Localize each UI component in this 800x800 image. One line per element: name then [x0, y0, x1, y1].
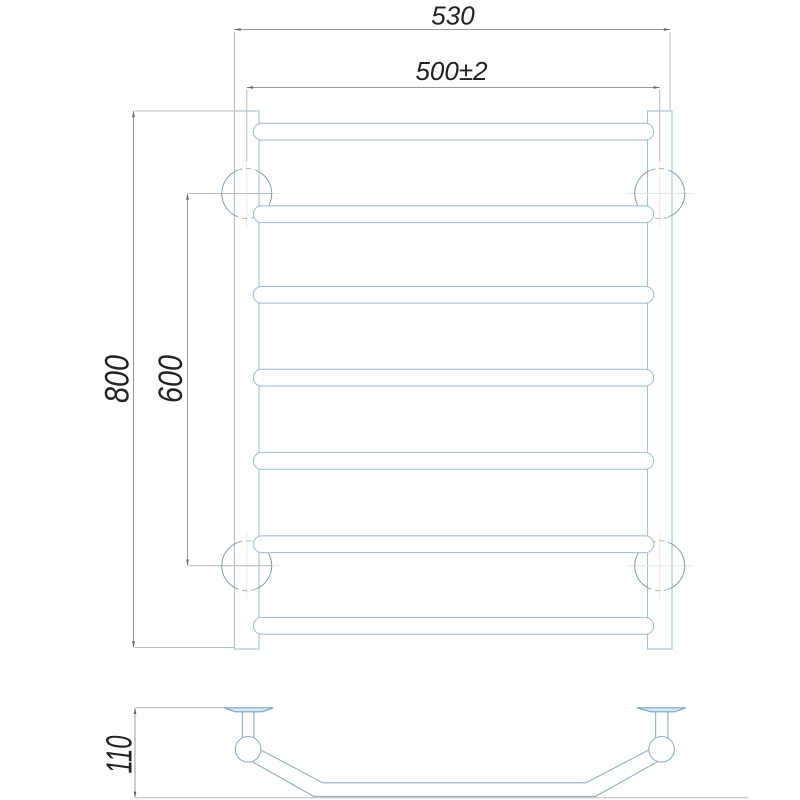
svg-text:530: 530: [431, 1, 475, 31]
svg-text:500±2: 500±2: [415, 56, 488, 86]
svg-text:110: 110: [99, 736, 140, 774]
svg-text:600: 600: [152, 355, 190, 403]
svg-text:800: 800: [99, 355, 137, 403]
